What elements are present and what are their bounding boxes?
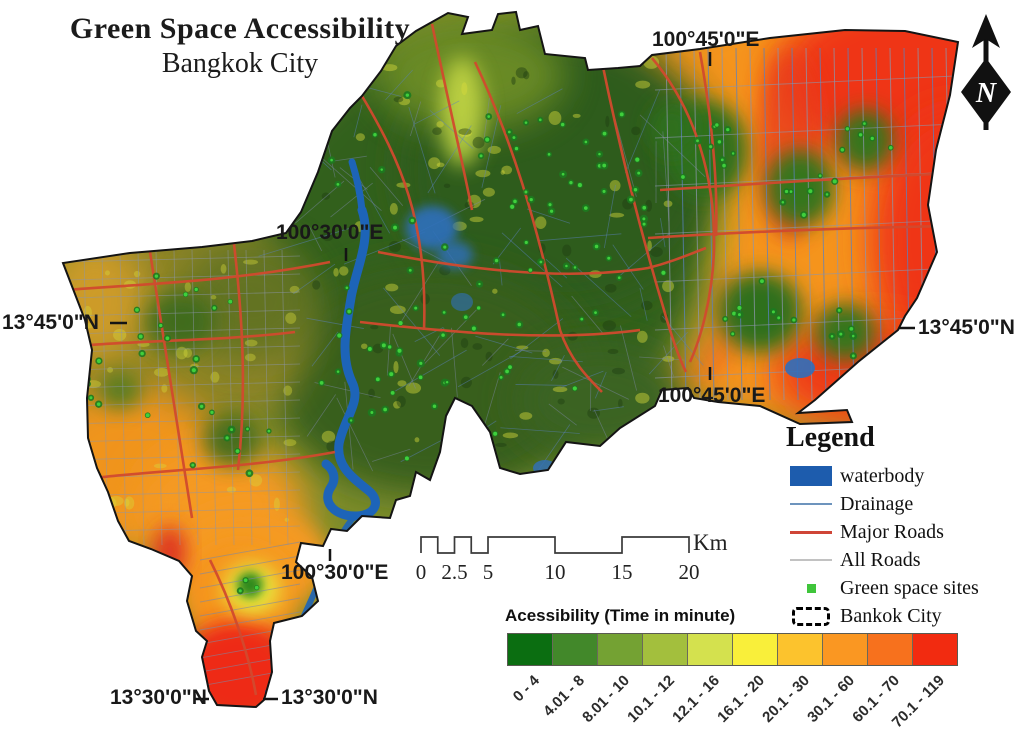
north-arrow-n: N [975, 78, 998, 109]
ramp-class-label: 30.1 - 60 [804, 672, 858, 726]
ramp-class-label: 16.1 - 20 [714, 672, 768, 726]
lat-label-bottom-left: 13°30'0"N [110, 686, 207, 710]
ramp-class-label: 0 - 4 [510, 672, 543, 705]
legend-title: Legend [786, 422, 1022, 454]
map-subtitle: Bangkok City [38, 48, 442, 80]
legend-item-label: Green space sites [840, 577, 979, 600]
scale-tick-label: 2.5 [441, 560, 467, 585]
scale-tick-label: 0 [416, 560, 427, 585]
legend-item-all-roads: All Roads [786, 546, 1022, 574]
legend-item-label: All Roads [840, 549, 921, 572]
lon-label-top: 100°45'0"E [652, 28, 759, 52]
scale-bar-graphic [405, 532, 735, 558]
map-title-block: Green Space Accessibility Bangkok City [38, 12, 442, 80]
ramp-class-swatch [688, 634, 733, 665]
scale-tick-label: 10 [545, 560, 566, 585]
legend-item-waterbody: waterbody [786, 462, 1022, 490]
lat-label-left: 13°45'0"N [2, 311, 99, 335]
ramp-class-swatch [643, 634, 688, 665]
scale-bar: Km 02.55101520 [405, 532, 735, 596]
ramp-class-swatch [508, 634, 553, 665]
accessibility-ramp: Acessibility (Time in minute) 0 - 44.01 … [503, 606, 973, 738]
all-roads-line-icon [790, 559, 832, 561]
lat-label-bottom-right: 13°30'0"N [281, 686, 378, 710]
waterbody-swatch-icon [790, 466, 832, 486]
ramp-class-label: 20.1 - 30 [759, 672, 813, 726]
ramp-class-label: 12.1 - 16 [669, 672, 723, 726]
lon-label-lower-mid: 100°30'0"E [281, 561, 388, 585]
legend: Legend waterbody Drainage Major Roads Al… [786, 422, 1022, 630]
legend-item-green-space-sites: Green space sites [786, 574, 1022, 602]
green-site-dot-icon [807, 584, 816, 593]
ramp-class-label: 10.1 - 12 [624, 672, 678, 726]
map-title: Green Space Accessibility [38, 12, 442, 46]
lat-label-right: 13°45'0"N [918, 316, 1015, 340]
legend-item-drainage: Drainage [786, 490, 1022, 518]
legend-item-label: Drainage [840, 493, 913, 516]
lon-label-upper-mid: 100°30'0"E [276, 221, 383, 245]
scale-tick-label: 5 [483, 560, 494, 585]
ramp-class-swatch [913, 634, 957, 665]
legend-item-label: waterbody [840, 465, 924, 488]
ramp-class-swatch [598, 634, 643, 665]
major-road-line-icon [790, 531, 832, 534]
ramp-title: Acessibility (Time in minute) [505, 606, 973, 626]
scale-tick-label: 15 [612, 560, 633, 585]
ramp-class-swatch [733, 634, 778, 665]
scale-unit: Km [693, 530, 728, 556]
ramp-class-swatch [553, 634, 598, 665]
legend-item-major-roads: Major Roads [786, 518, 1022, 546]
scale-tick-label: 20 [679, 560, 700, 585]
north-arrow-icon: N [961, 14, 1011, 130]
ramp-class-swatch [823, 634, 868, 665]
ramp-class-label: 8.01 - 10 [579, 672, 633, 726]
ramp-color-cells [507, 633, 958, 666]
map-figure: N Green Space Accessibility Bangkok City… [0, 0, 1024, 738]
drainage-line-icon [790, 503, 832, 505]
legend-item-label: Major Roads [840, 521, 944, 544]
ramp-class-swatch [778, 634, 823, 665]
ramp-class-swatch [868, 634, 913, 665]
lon-label-mid-east: 100°45'0"E [658, 384, 765, 408]
